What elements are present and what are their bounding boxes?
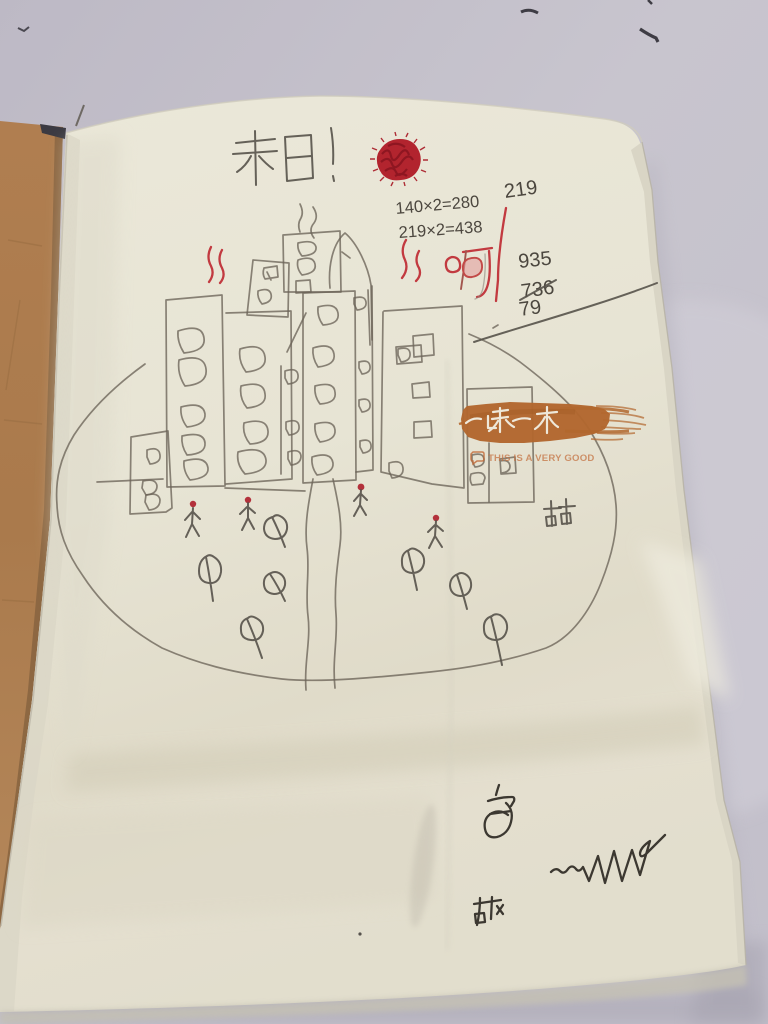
svg-text:79: 79 bbox=[518, 296, 543, 321]
svg-text:935: 935 bbox=[517, 248, 552, 273]
svg-text:219: 219 bbox=[503, 177, 539, 203]
svg-text:THIS IS A VERY GOOD: THIS IS A VERY GOOD bbox=[488, 453, 595, 464]
